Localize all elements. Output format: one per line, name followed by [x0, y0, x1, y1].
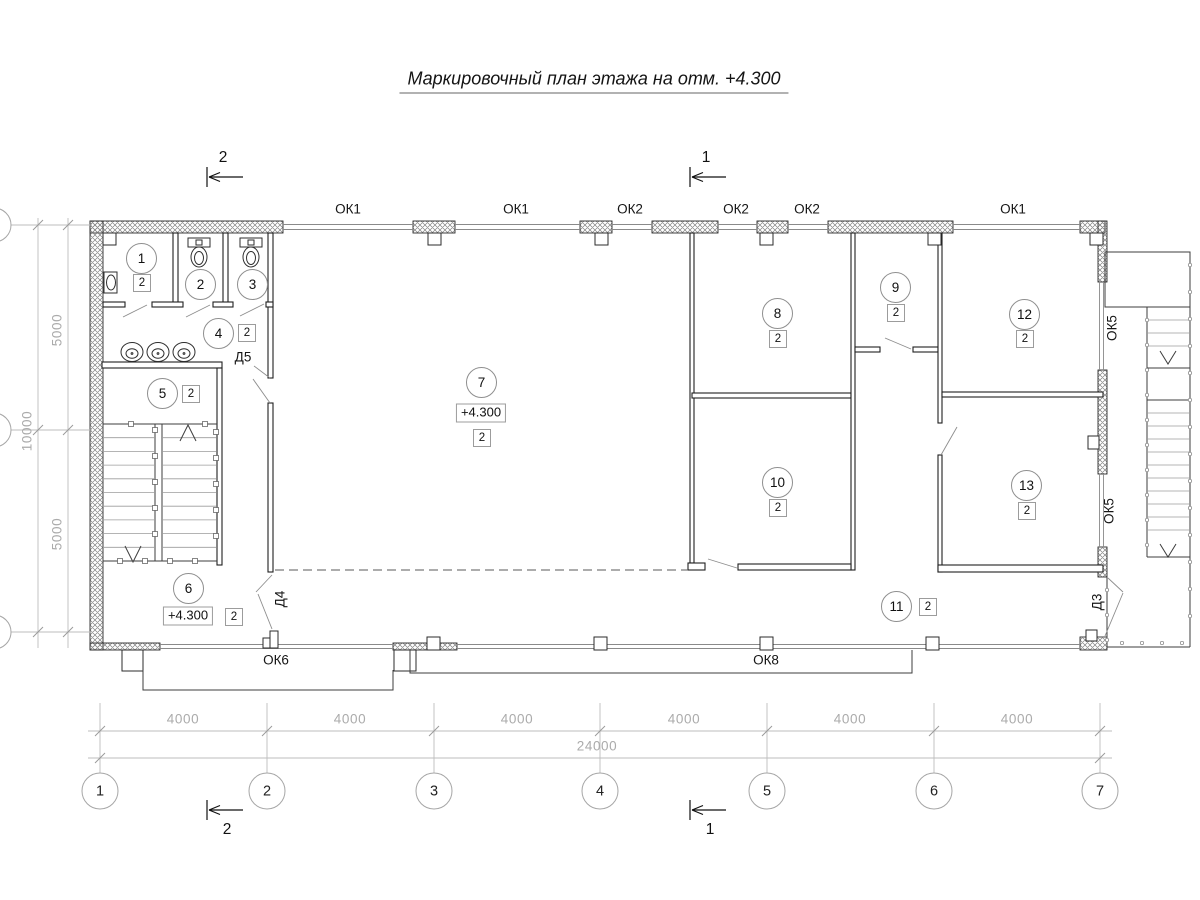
dim-label-4000-3: 4000 [668, 712, 700, 727]
dim-label-4000-2: 4000 [501, 712, 533, 727]
room-tag-4: 4 [203, 318, 234, 349]
floor-plan-canvas: ОК1ОК1ОК2ОК2ОК2ОК1ОК6ОК8ОК5ОК5Д5Д4Д31223… [0, 0, 1200, 900]
window-label-1: ОК1 [503, 202, 529, 217]
window-label-6: ОК6 [263, 653, 289, 668]
room-category-12: 2 [1016, 330, 1034, 348]
dim-label-left-0: 5000 [50, 314, 65, 346]
room-category-13: 2 [1018, 502, 1036, 520]
elevation-mark-room-6: +4.300 [163, 607, 213, 626]
dim-label-left-2: 10000 [20, 411, 35, 452]
room-tag-10: 10 [762, 467, 793, 498]
window-label-9: ОК5 [1102, 498, 1117, 524]
room-tag-12: 12 [1009, 299, 1040, 330]
dim-label-4000-1: 4000 [334, 712, 366, 727]
room-category-6: 2 [225, 608, 243, 626]
room-tag-9: 9 [880, 272, 911, 303]
room-category-1: 2 [133, 274, 151, 292]
room-category-7: 2 [473, 429, 491, 447]
section-mark-label-3: 1 [706, 821, 715, 839]
dim-label-left-1: 5000 [50, 518, 65, 550]
window-label-7: ОК8 [753, 653, 779, 668]
dim-label-4000-4: 4000 [834, 712, 866, 727]
axis-bubble-5: 5 [749, 773, 786, 810]
labels-overlay: ОК1ОК1ОК2ОК2ОК2ОК1ОК6ОК8ОК5ОК5Д5Д4Д31223… [0, 0, 1200, 900]
room-tag-8: 8 [762, 298, 793, 329]
room-category-10: 2 [769, 499, 787, 517]
axis-bubble-4: 4 [582, 773, 619, 810]
room-tag-2: 2 [185, 269, 216, 300]
axis-bubble-7: 7 [1082, 773, 1119, 810]
room-category-4: 2 [238, 324, 256, 342]
section-mark-label-2: 2 [223, 821, 232, 839]
section-mark-label-1: 1 [702, 149, 711, 167]
room-tag-11: 11 [881, 591, 912, 622]
elevation-mark-room-7: +4.300 [456, 404, 506, 423]
room-tag-6: 6 [173, 573, 204, 604]
window-label-2: ОК2 [617, 202, 643, 217]
drawing-title: Маркировочный план этажа на отм. +4.300 [399, 69, 788, 94]
window-label-4: ОК2 [794, 202, 820, 217]
dim-label-4000-0: 4000 [167, 712, 199, 727]
room-category-5: 2 [182, 385, 200, 403]
room-category-8: 2 [769, 330, 787, 348]
window-label-5: ОК1 [1000, 202, 1026, 217]
axis-bubble-2: 2 [249, 773, 286, 810]
window-label-8: ОК5 [1105, 315, 1120, 341]
door-label-1: Д4 [273, 591, 288, 608]
window-label-0: ОК1 [335, 202, 361, 217]
door-label-2: Д3 [1090, 594, 1105, 611]
room-tag-3: 3 [237, 269, 268, 300]
room-tag-1: 1 [126, 243, 157, 274]
room-category-11: 2 [919, 598, 937, 616]
axis-bubble-1: 1 [82, 773, 119, 810]
window-label-3: ОК2 [723, 202, 749, 217]
room-category-9: 2 [887, 304, 905, 322]
dim-label-total: 24000 [577, 739, 618, 754]
room-tag-13: 13 [1011, 470, 1042, 501]
axis-bubble-3: 3 [416, 773, 453, 810]
section-mark-label-0: 2 [219, 149, 228, 167]
axis-bubble-6: 6 [916, 773, 953, 810]
room-tag-7: 7 [466, 367, 497, 398]
dim-label-4000-5: 4000 [1001, 712, 1033, 727]
room-tag-5: 5 [147, 378, 178, 409]
door-label-0: Д5 [235, 350, 252, 365]
